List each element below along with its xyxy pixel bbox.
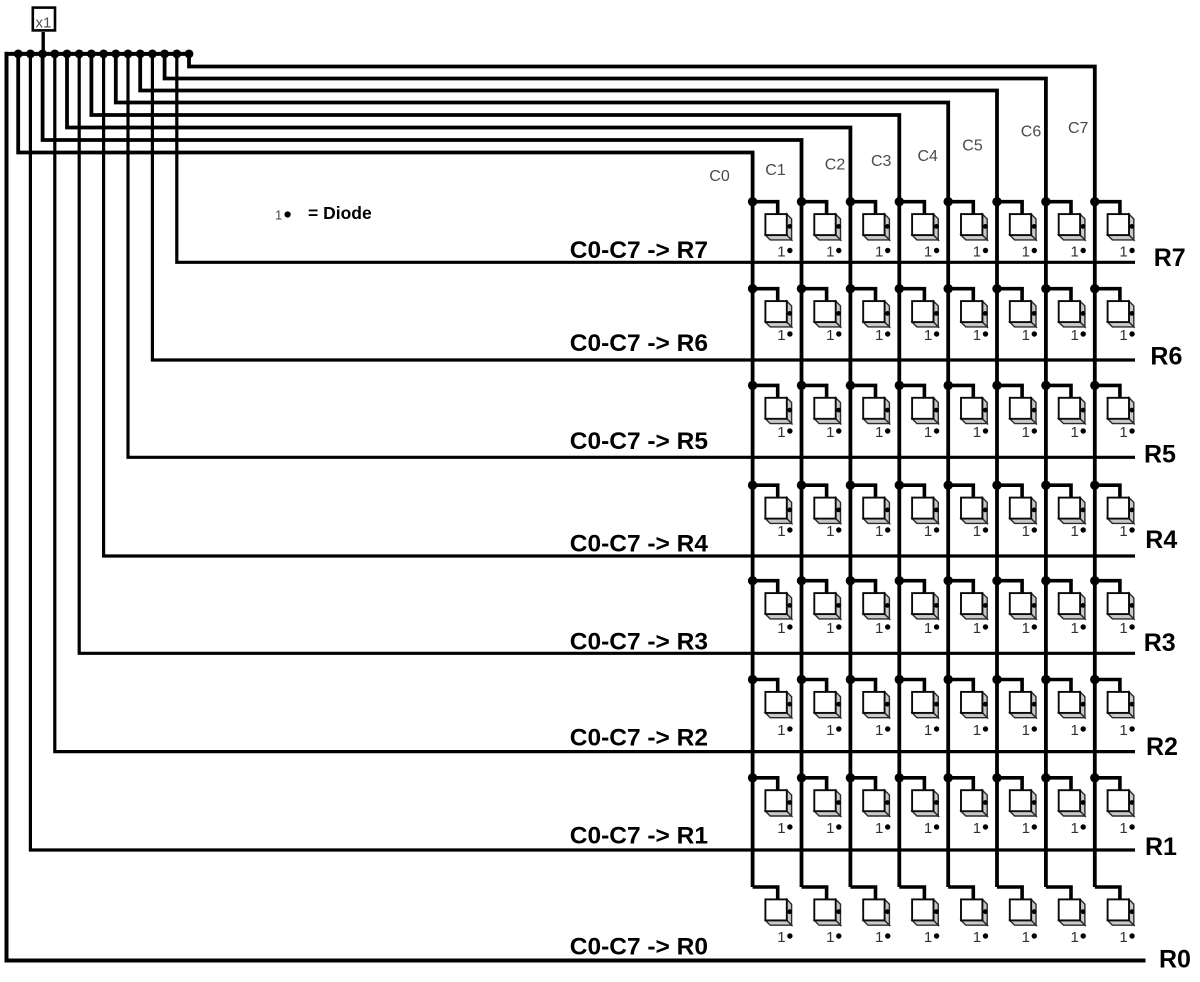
svg-text:1: 1: [875, 620, 883, 637]
svg-text:1: 1: [826, 244, 834, 261]
svg-text:1: 1: [924, 929, 932, 946]
svg-text:1: 1: [1119, 244, 1127, 261]
svg-text:C0-C7 -> R2: C0-C7 -> R2: [570, 725, 708, 752]
svg-text:1: 1: [875, 929, 883, 946]
svg-text:1: 1: [1022, 327, 1030, 344]
svg-text:1: 1: [924, 620, 932, 637]
svg-text:1: 1: [973, 424, 981, 441]
svg-text:1: 1: [1022, 929, 1030, 946]
svg-text:1: 1: [777, 820, 785, 837]
svg-text:1: 1: [875, 327, 883, 344]
svg-text:R5: R5: [1144, 440, 1176, 468]
svg-text:1: 1: [973, 523, 981, 540]
svg-text:1: 1: [1071, 929, 1079, 946]
svg-text:1: 1: [1022, 620, 1030, 637]
svg-text:1: 1: [875, 722, 883, 739]
svg-text:1: 1: [1022, 820, 1030, 837]
svg-text:C0-C7 -> R1: C0-C7 -> R1: [570, 823, 708, 850]
svg-text:1: 1: [875, 820, 883, 837]
svg-text:C4: C4: [918, 148, 939, 165]
svg-text:1: 1: [1071, 820, 1079, 837]
svg-text:1: 1: [924, 722, 932, 739]
svg-text:R2: R2: [1146, 733, 1178, 761]
svg-text:C0-C7 -> R4: C0-C7 -> R4: [570, 531, 709, 558]
svg-text:1: 1: [1119, 722, 1127, 739]
svg-text:1: 1: [1071, 244, 1079, 261]
svg-text:R3: R3: [1144, 629, 1176, 657]
svg-text:1: 1: [875, 244, 883, 261]
svg-text:1: 1: [777, 523, 785, 540]
svg-text:1: 1: [924, 820, 932, 837]
svg-text:1: 1: [924, 244, 932, 261]
svg-text:1: 1: [777, 424, 785, 441]
svg-text:R6: R6: [1150, 342, 1182, 370]
svg-text:1: 1: [973, 820, 981, 837]
svg-text:1: 1: [1071, 424, 1079, 441]
svg-text:C0-C7 -> R0: C0-C7 -> R0: [570, 934, 708, 961]
svg-text:1: 1: [826, 929, 834, 946]
svg-text:x1: x1: [36, 15, 52, 32]
svg-text:1: 1: [826, 523, 834, 540]
svg-text:1: 1: [777, 929, 785, 946]
svg-text:1: 1: [777, 620, 785, 637]
svg-text:1: 1: [826, 820, 834, 837]
svg-text:R4: R4: [1145, 526, 1177, 554]
svg-text:1: 1: [1071, 722, 1079, 739]
svg-text:C0-C7 -> R3: C0-C7 -> R3: [570, 629, 708, 656]
svg-text:R1: R1: [1145, 833, 1177, 861]
svg-text:1: 1: [1022, 244, 1030, 261]
svg-text:C0-C7 -> R7: C0-C7 -> R7: [570, 237, 708, 264]
svg-text:C5: C5: [962, 137, 983, 154]
svg-text:1: 1: [777, 722, 785, 739]
svg-text:C3: C3: [871, 153, 892, 170]
svg-text:1: 1: [875, 424, 883, 441]
svg-text:1: 1: [826, 424, 834, 441]
svg-text:1: 1: [973, 929, 981, 946]
svg-text:1: 1: [1119, 523, 1127, 540]
svg-text:1: 1: [777, 327, 785, 344]
svg-text:1: 1: [1071, 327, 1079, 344]
svg-text:1: 1: [973, 722, 981, 739]
svg-text:1: 1: [826, 620, 834, 637]
svg-text:1: 1: [1119, 929, 1127, 946]
svg-text:1: 1: [924, 523, 932, 540]
svg-text:1: 1: [1022, 523, 1030, 540]
svg-text:1: 1: [924, 424, 932, 441]
svg-text:1: 1: [924, 327, 932, 344]
svg-text:1: 1: [875, 523, 883, 540]
svg-text:1: 1: [973, 327, 981, 344]
svg-text:R7: R7: [1154, 244, 1186, 272]
svg-text:1: 1: [1119, 424, 1127, 441]
svg-text:1: 1: [1071, 620, 1079, 637]
svg-text:C6: C6: [1021, 123, 1042, 140]
svg-text:1: 1: [826, 722, 834, 739]
svg-text:1: 1: [973, 620, 981, 637]
svg-text:1: 1: [1022, 424, 1030, 441]
svg-text:1: 1: [973, 244, 981, 261]
svg-text:1: 1: [1119, 327, 1127, 344]
svg-text:1: 1: [777, 244, 785, 261]
svg-text:C0-C7 -> R6: C0-C7 -> R6: [570, 330, 708, 357]
svg-text:C7: C7: [1068, 120, 1089, 137]
svg-text:C1: C1: [765, 162, 786, 179]
svg-text:1: 1: [1119, 820, 1127, 837]
svg-text:C2: C2: [825, 157, 846, 174]
svg-text:= Diode: = Diode: [308, 203, 372, 223]
svg-text:R0: R0: [1159, 946, 1191, 974]
svg-text:1: 1: [1071, 523, 1079, 540]
svg-text:1: 1: [826, 327, 834, 344]
svg-text:C0: C0: [709, 168, 730, 185]
svg-text:1: 1: [1022, 722, 1030, 739]
svg-text:C0-C7 -> R5: C0-C7 -> R5: [570, 428, 708, 455]
svg-text:1: 1: [1119, 620, 1127, 637]
svg-text:1: 1: [275, 208, 282, 223]
